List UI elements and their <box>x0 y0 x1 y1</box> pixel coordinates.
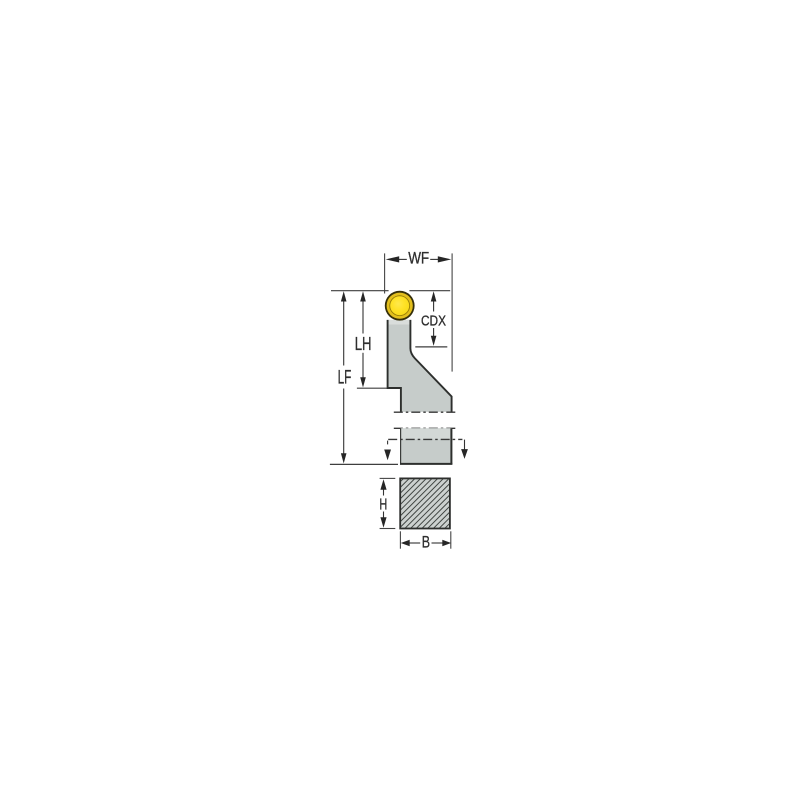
svg-text:LH: LH <box>355 333 372 354</box>
svg-text:CDX: CDX <box>421 313 446 330</box>
svg-text:LF: LF <box>338 366 352 388</box>
svg-text:WF: WF <box>408 249 429 268</box>
svg-text:B: B <box>422 533 430 551</box>
svg-text:H: H <box>379 497 387 514</box>
